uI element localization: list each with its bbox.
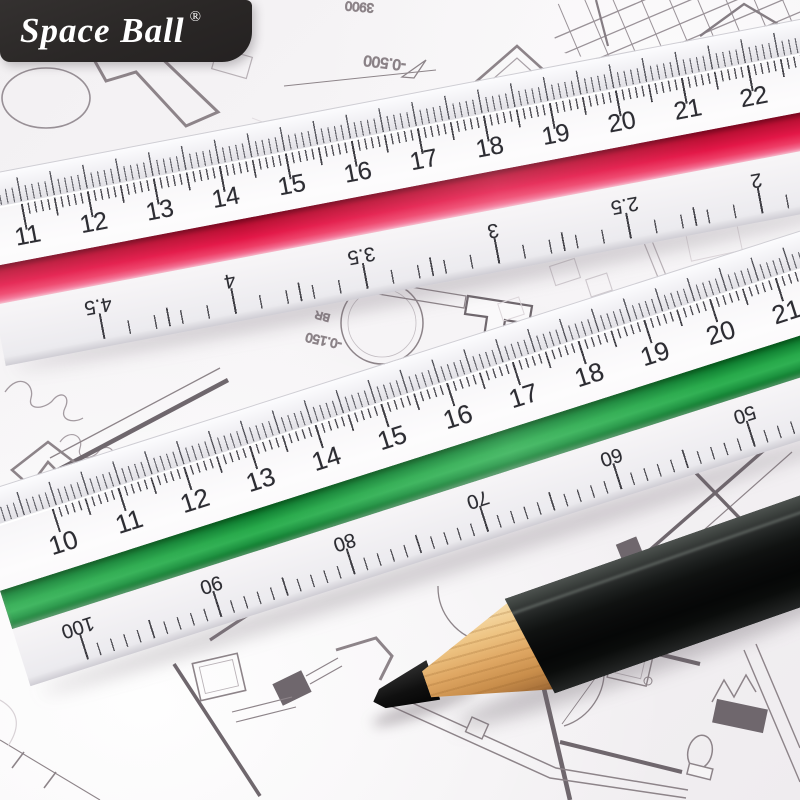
brand-logo-banner: Space Ball ®	[0, 0, 252, 62]
ruler-number: 16	[439, 398, 476, 436]
brand-name: Space Ball	[20, 11, 185, 51]
ruler-number: 18	[474, 131, 507, 165]
ruler-number: 22	[738, 81, 771, 115]
ruler-number: 15	[374, 419, 411, 457]
ruler-number: 19	[637, 335, 674, 373]
ruler-number: 13	[242, 461, 279, 499]
ruler-number: 15	[275, 169, 308, 203]
elevation-annotation: -0.500	[363, 52, 407, 74]
ruler-number: 14	[308, 440, 345, 478]
product-photo-scene: -0.500 3900	[0, 0, 800, 800]
ruler-number: 14	[209, 181, 242, 215]
ruler-number: 20	[606, 106, 639, 140]
ruler-number: 21	[672, 93, 705, 127]
registered-trademark-icon: ®	[190, 9, 201, 26]
ruler-number: 10	[45, 524, 82, 562]
elevation-mid-annotation: -0.150	[304, 330, 343, 352]
ruler-number: 13	[143, 194, 176, 228]
ruler-number: 11	[12, 219, 43, 252]
ruler-number: 12	[77, 206, 110, 240]
ruler-number: 17	[408, 144, 441, 178]
ruler-number: 16	[342, 156, 375, 190]
ruler-number: 11	[112, 503, 147, 541]
ruler-number: 17	[505, 377, 542, 415]
dimension-annotation: 3900	[344, 0, 374, 16]
ruler-number: 20	[702, 314, 739, 352]
ruler-number: 12	[176, 482, 213, 520]
ruler-number: 18	[571, 356, 608, 394]
ruler-number: 19	[540, 118, 573, 152]
